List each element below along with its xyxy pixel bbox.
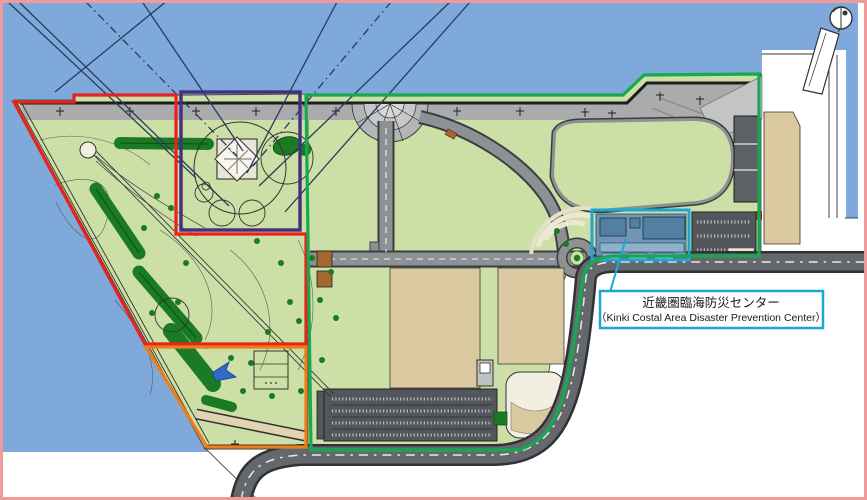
pier-storage-yard (764, 112, 800, 244)
plaza-hedge (494, 412, 507, 425)
round-pond (80, 142, 96, 158)
beacon-dot (843, 11, 848, 16)
kiosk-north (317, 251, 332, 267)
site-plan-canvas: 近畿圏臨海防災センター （Kinki Costal Area Disaster … (0, 0, 867, 500)
south-parking-lot (317, 389, 497, 441)
parking-ground (324, 389, 497, 441)
annotation-label-jp: 近畿圏臨海防災センター (642, 295, 780, 310)
center-building-small (630, 218, 640, 228)
great-lawn (554, 121, 731, 209)
compound-apron (600, 243, 684, 252)
open-plot-east (498, 268, 564, 364)
annotation-label-en: （Kinki Costal Area Disaster Prevention C… (596, 312, 826, 324)
annotation-label: 近畿圏臨海防災センター （Kinki Costal Area Disaster … (596, 291, 826, 328)
turnaround-tree (574, 255, 580, 261)
small-facility-roof (480, 363, 490, 373)
center-building-east (643, 217, 685, 239)
ne-parking-lot (692, 211, 762, 257)
disaster-center-compound (592, 210, 689, 292)
site-plan-map: 近畿圏臨海防災センター （Kinki Costal Area Disaster … (0, 0, 867, 500)
open-plot-west (390, 268, 480, 388)
hedge-small (206, 400, 232, 407)
center-building-west (600, 218, 626, 236)
ne-building-strip (734, 116, 759, 202)
water-east-strip (845, 3, 858, 218)
